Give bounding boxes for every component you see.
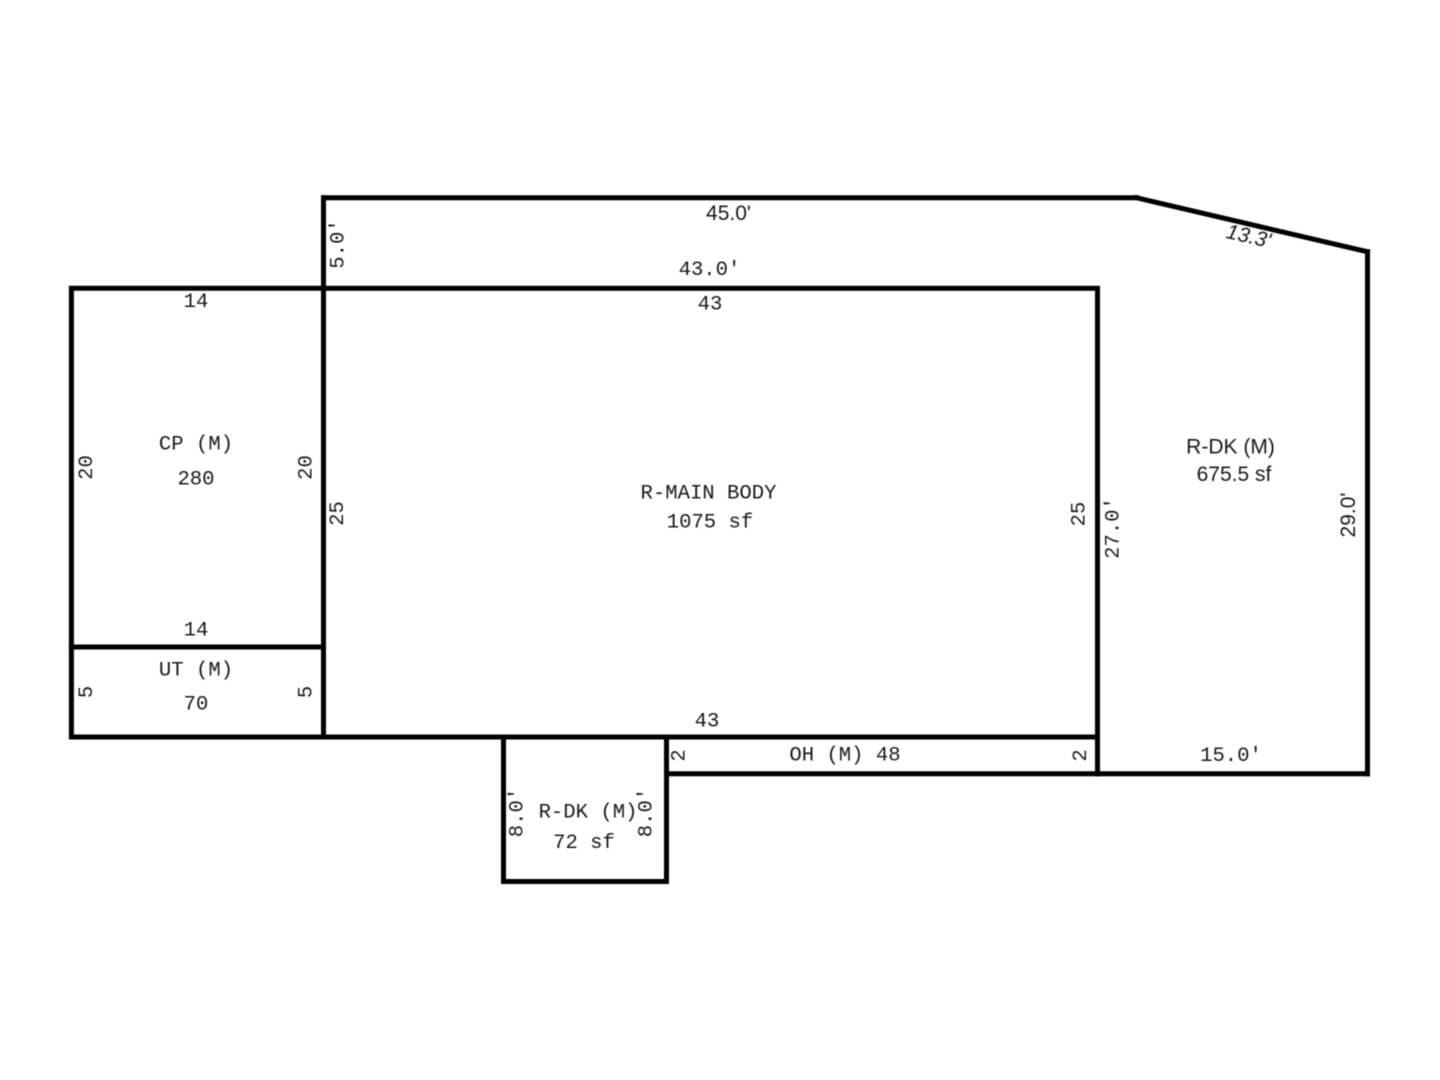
svg-text:14: 14: [184, 620, 209, 643]
svg-text:27.0': 27.0': [1103, 497, 1126, 559]
svg-text:R-DK (M): R-DK (M): [1186, 436, 1275, 459]
svg-text:1075 sf: 1075 sf: [667, 512, 754, 535]
svg-text:2: 2: [669, 749, 692, 761]
svg-text:2: 2: [1070, 749, 1093, 761]
svg-text:43.0': 43.0': [679, 259, 741, 282]
svg-text:5.0': 5.0': [328, 219, 351, 268]
svg-text:20: 20: [296, 455, 319, 480]
svg-text:25: 25: [327, 501, 350, 526]
svg-text:675.5 sf: 675.5 sf: [1197, 463, 1272, 486]
svg-text:UT (M): UT (M): [159, 660, 233, 683]
svg-text:5: 5: [296, 686, 319, 698]
svg-text:20: 20: [76, 455, 99, 480]
svg-text:280: 280: [177, 469, 214, 492]
svg-text:70: 70: [184, 694, 209, 717]
svg-text:8.0': 8.0': [636, 788, 659, 837]
svg-text:45.0': 45.0': [706, 202, 751, 225]
svg-text:29.0': 29.0': [1337, 493, 1360, 538]
svg-text:43: 43: [698, 294, 723, 317]
svg-text:15.0': 15.0': [1200, 745, 1262, 768]
svg-text:CP (M): CP (M): [159, 434, 233, 457]
svg-text:R-DK (M): R-DK (M): [539, 802, 638, 825]
svg-text:5: 5: [76, 686, 99, 698]
svg-text:14: 14: [184, 291, 209, 314]
svg-text:8.0': 8.0': [507, 788, 530, 837]
svg-text:OH (M) 48: OH (M) 48: [789, 745, 900, 768]
svg-text:R-MAIN BODY: R-MAIN BODY: [641, 483, 777, 506]
svg-text:72 sf: 72 sf: [553, 832, 615, 855]
svg-text:43: 43: [695, 711, 720, 734]
svg-text:25: 25: [1069, 502, 1092, 527]
